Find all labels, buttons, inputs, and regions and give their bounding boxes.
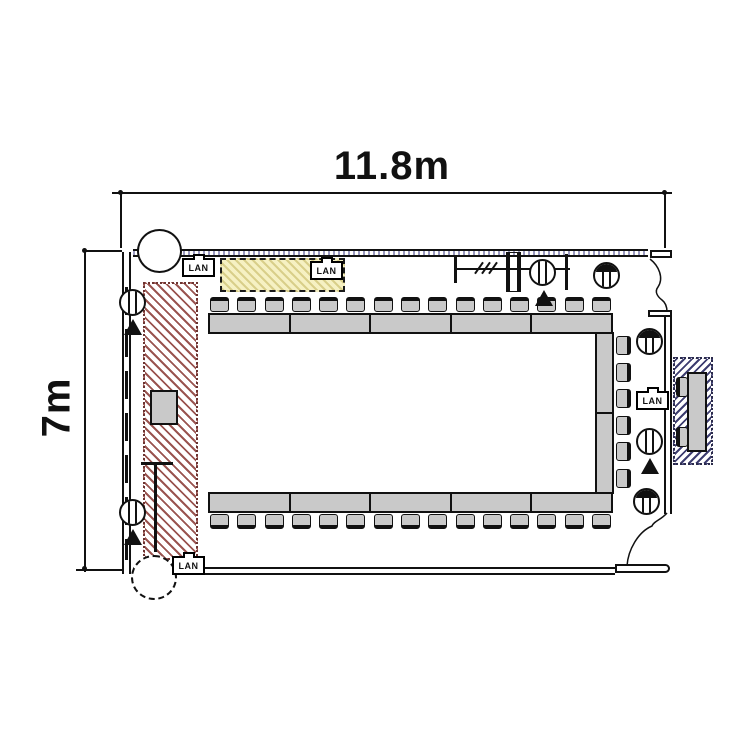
lan-label: LAN: [643, 396, 663, 406]
chair: [456, 297, 475, 312]
outlet-arrow-icon: [641, 458, 659, 474]
floor-outlet-icon: [529, 259, 556, 286]
chair: [346, 297, 365, 312]
chair: [374, 514, 393, 529]
door-swing-top: [645, 256, 677, 316]
outlet-arrow-icon: [535, 290, 553, 306]
table-segment: [289, 492, 372, 513]
screen-stand-pole: [154, 462, 157, 552]
width-dimension-label: 11.8m: [192, 144, 592, 189]
door-swing-bottom: [620, 508, 672, 570]
chair: [565, 297, 584, 312]
outlet-arrow-icon: [124, 529, 142, 545]
extension-line: [120, 194, 122, 248]
height-dimension-label: 7m: [35, 358, 80, 458]
chair: [319, 514, 338, 529]
table-segment: [208, 492, 291, 513]
column-top-left: [137, 229, 182, 273]
screen-stand-bar: [141, 462, 173, 465]
column-bottom-left: [131, 555, 177, 600]
chair: [592, 514, 611, 529]
chair: [616, 389, 631, 408]
extension-line: [664, 194, 666, 248]
table-segment: [530, 313, 613, 334]
chair: [616, 363, 631, 382]
chair: [374, 297, 393, 312]
lan-port: LAN: [182, 258, 215, 277]
chair: [346, 514, 365, 529]
table-segment: [289, 313, 372, 334]
chair: [616, 416, 631, 435]
table-segment: [369, 313, 452, 334]
extension-line: [76, 569, 122, 571]
chair: [592, 297, 611, 312]
wall-bottom: [133, 567, 615, 575]
chair: [237, 514, 256, 529]
chair: [292, 514, 311, 529]
chair: [483, 297, 502, 312]
lan-label: LAN: [189, 263, 209, 273]
table-segment: [595, 412, 614, 494]
chair: [210, 297, 229, 312]
wall-top: [133, 249, 648, 257]
table-segment: [530, 492, 613, 513]
track-end-bar: [454, 255, 457, 283]
chair: [510, 514, 529, 529]
chair: [483, 514, 502, 529]
track-double-bar: [506, 252, 521, 292]
chair: [537, 514, 556, 529]
floor-outlet-icon: [636, 428, 663, 455]
floor-plan: 11.8m 7m: [0, 0, 750, 750]
table-row-bottom: [208, 492, 613, 513]
table-segment: [595, 332, 614, 414]
lan-label: LAN: [317, 266, 337, 276]
floor-outlet-icon: [119, 499, 146, 526]
lan-port: LAN: [172, 556, 205, 575]
wall-right: [664, 316, 672, 514]
table-segment: [208, 313, 291, 334]
table-column-right: [595, 332, 614, 494]
chair: [676, 427, 688, 447]
chair: [401, 514, 420, 529]
chair: [510, 297, 529, 312]
lan-port: LAN: [310, 261, 343, 280]
height-dimension-line: [84, 250, 86, 572]
chair-column-right: [616, 336, 631, 488]
chair: [616, 469, 631, 488]
chair: [210, 514, 229, 529]
wall-outlet-icon: [633, 488, 660, 515]
chair: [565, 514, 584, 529]
outlet-arrow-icon: [124, 319, 142, 335]
chair: [428, 297, 447, 312]
floor-outlet-icon: [119, 289, 146, 316]
chair: [319, 297, 338, 312]
chair: [237, 297, 256, 312]
chair: [676, 377, 688, 397]
extension-line: [84, 250, 122, 252]
av-console-table: [687, 372, 707, 452]
podium: [150, 390, 178, 425]
table-segment: [369, 492, 452, 513]
chair: [616, 442, 631, 461]
chair: [456, 514, 475, 529]
lan-port: LAN: [636, 391, 669, 410]
track-end-bar: [565, 254, 568, 290]
chair-row-bottom: [210, 514, 611, 529]
table-segment: [450, 313, 533, 334]
chair: [401, 297, 420, 312]
chair: [292, 297, 311, 312]
chair: [265, 514, 284, 529]
table-row-top: [208, 313, 613, 334]
lan-label: LAN: [179, 561, 199, 571]
wall-outlet-icon: [636, 328, 663, 355]
width-dimension-line: [112, 192, 672, 194]
table-segment: [450, 492, 533, 513]
chair: [265, 297, 284, 312]
chair: [616, 336, 631, 355]
chair: [428, 514, 447, 529]
wall-outlet-icon: [593, 262, 620, 289]
